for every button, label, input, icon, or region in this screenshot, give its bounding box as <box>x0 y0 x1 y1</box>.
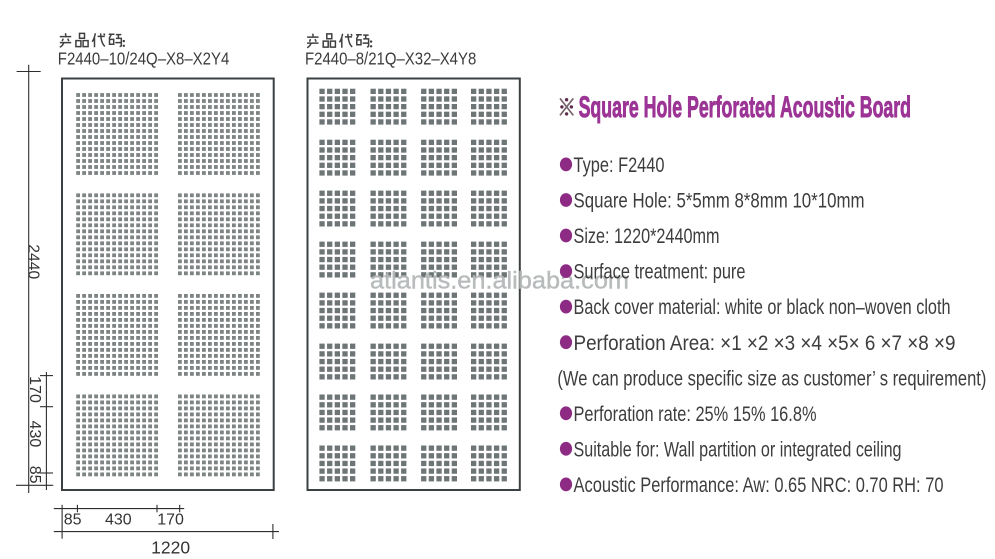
svg-text:F2440–8/21Q–X32–X4Y8: F2440–8/21Q–X32–X4Y8 <box>305 49 476 69</box>
svg-text:Surface treatment: pure: Surface treatment: pure <box>574 260 746 284</box>
svg-text:Square Hole: 5*5mm 8*8mm 10*10: Square Hole: 5*5mm 8*8mm 10*10mm <box>574 189 865 213</box>
svg-text:85: 85 <box>26 466 43 484</box>
svg-text:Acoustic Performance: Aw: 0.65: Acoustic Performance: Aw: 0.65 NRC: 0.70… <box>574 473 944 497</box>
svg-text:(We can produce specific size: (We can produce specific size as custome… <box>557 366 986 390</box>
svg-text:Size: 1220*2440mm: Size: 1220*2440mm <box>574 224 720 248</box>
svg-text:85: 85 <box>64 511 82 528</box>
svg-text:Back cover material: white or: Back cover material: white or black non–… <box>574 295 951 319</box>
svg-text:F2440–10/24Q–X8–X2Y4: F2440–10/24Q–X8–X2Y4 <box>58 49 230 69</box>
svg-text:Perforation rate: 25% 15% 16.8: Perforation rate: 25% 15% 16.8% <box>574 402 817 426</box>
svg-text:2440: 2440 <box>25 244 42 279</box>
svg-text:430: 430 <box>105 511 132 528</box>
svg-text:430: 430 <box>26 421 43 448</box>
svg-text:Square Hole Perforated Acousti: Square Hole Perforated Acoustic Board <box>579 91 911 124</box>
svg-text:Suitable for: Wall partition o: Suitable for: Wall partition or integrat… <box>574 437 902 461</box>
svg-text:170: 170 <box>26 376 43 403</box>
svg-text:170: 170 <box>157 511 184 528</box>
svg-text:1220: 1220 <box>151 538 190 558</box>
svg-text:Perforation Area: ×1 ×2 ×3 ×4: Perforation Area: ×1 ×2 ×3 ×4 ×5× 6 ×7 ×… <box>574 331 956 355</box>
svg-text:Type: F2440: Type: F2440 <box>574 153 665 177</box>
